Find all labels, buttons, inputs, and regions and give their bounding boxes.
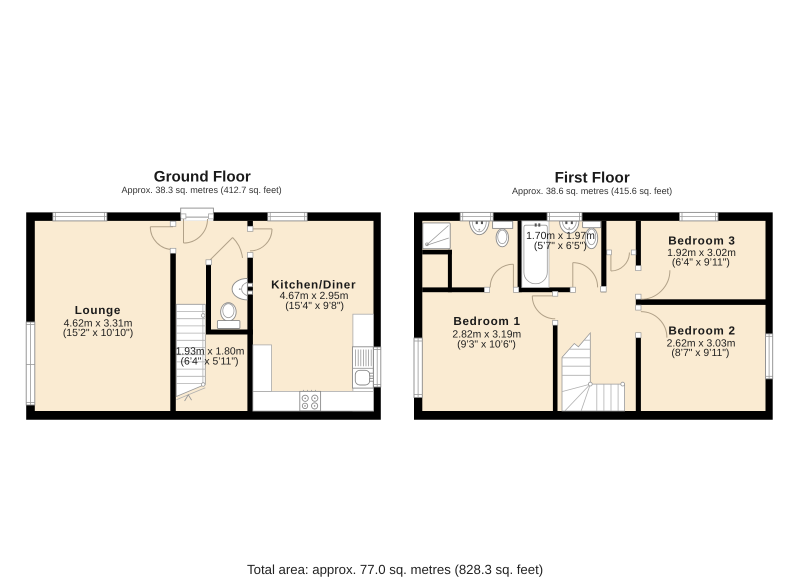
- svg-text:Lounge: Lounge: [75, 304, 121, 317]
- svg-text:Approx. 38.6 sq. metres (415.6: Approx. 38.6 sq. metres (415.6 sq. feet): [512, 186, 672, 196]
- svg-text:Bedroom 2: Bedroom 2: [668, 325, 735, 338]
- svg-text:(6’4" x 5’11"): (6’4" x 5’11"): [180, 356, 238, 367]
- svg-text:First Floor: First Floor: [555, 170, 630, 187]
- svg-text:(8’7" x 9’11"): (8’7" x 9’11"): [671, 348, 729, 359]
- svg-text:Bedroom 3: Bedroom 3: [668, 235, 735, 248]
- svg-text:(15’2" x 10’10"): (15’2" x 10’10"): [63, 328, 133, 339]
- svg-text:(5’7" x 6’5"): (5’7" x 6’5"): [534, 241, 587, 252]
- svg-text:Bedroom 1: Bedroom 1: [453, 315, 520, 328]
- svg-text:Total area: approx. 77.0 sq. m: Total area: approx. 77.0 sq. metres (828…: [247, 562, 543, 577]
- svg-text:(15’4" x 9’8"): (15’4" x 9’8"): [285, 301, 344, 312]
- svg-text:Ground Floor: Ground Floor: [154, 169, 251, 186]
- svg-text:Approx. 38.3 sq. metres (412.7: Approx. 38.3 sq. metres (412.7 sq. feet): [121, 185, 281, 195]
- svg-text:(6’4" x 9’11"): (6’4" x 9’11"): [672, 258, 730, 269]
- svg-text:Kitchen/Diner: Kitchen/Diner: [271, 279, 356, 292]
- svg-text:(9’3" x 10’6"): (9’3" x 10’6"): [457, 340, 516, 351]
